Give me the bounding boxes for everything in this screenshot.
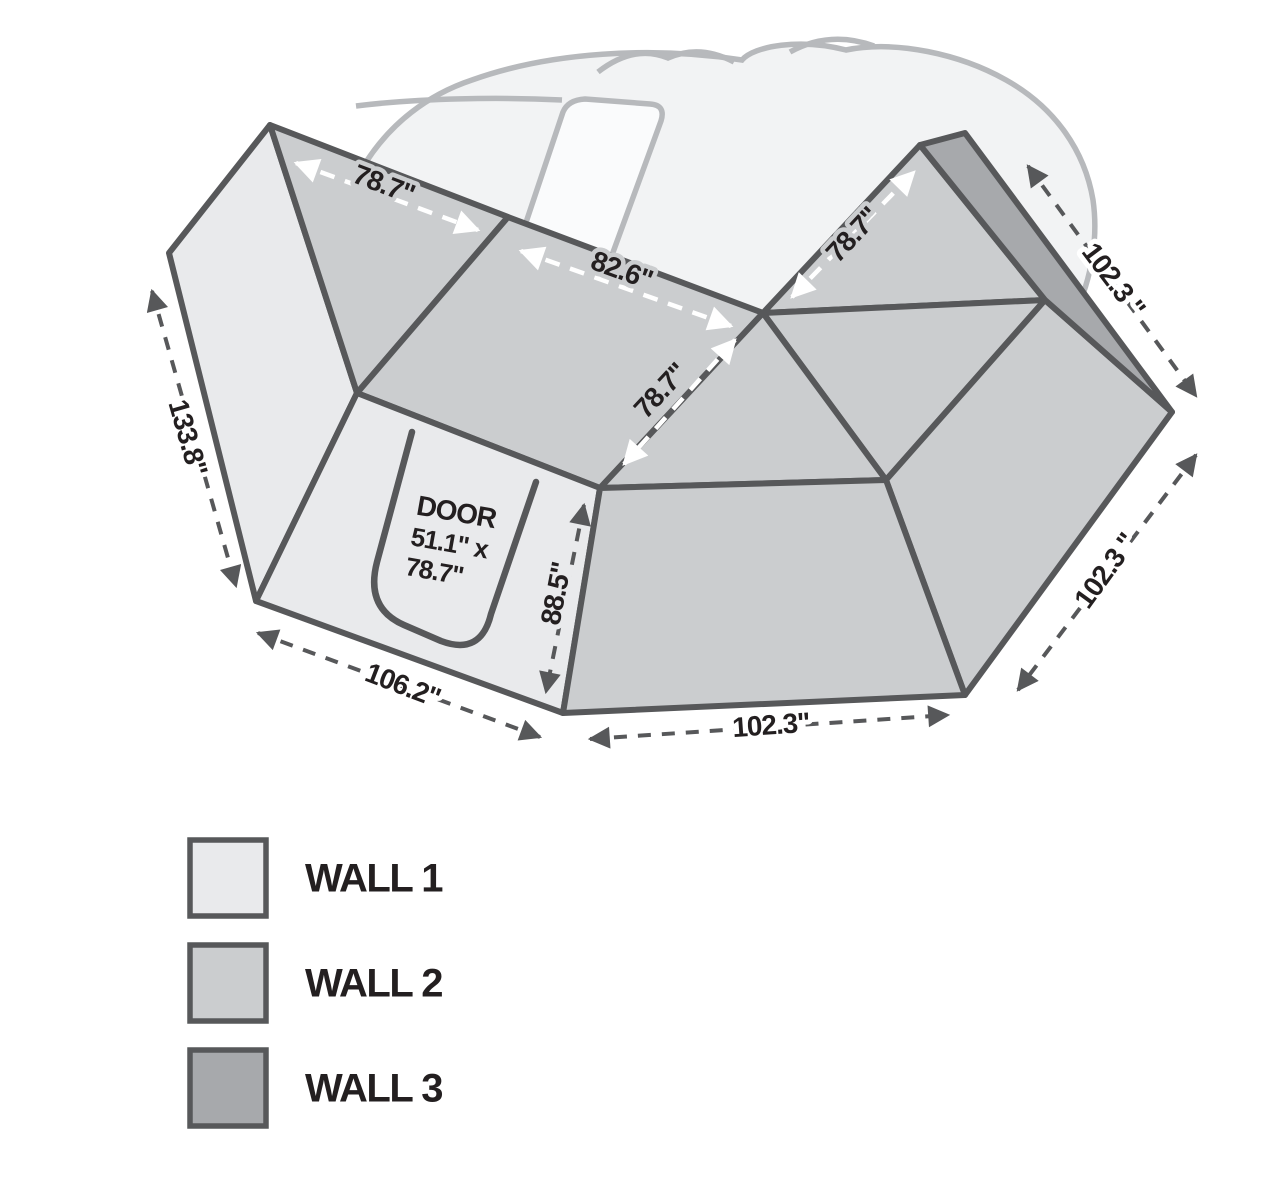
legend-swatch-wall1	[190, 840, 266, 916]
legend-swatch-wall2	[190, 945, 266, 1021]
legend-swatch-wall3	[190, 1050, 266, 1126]
legend-label-wall3: WALL 3	[305, 1067, 442, 1111]
awning-wall-dimension-page: DOOR 51.1" x 78.7" 78.7" 82.6" 78.7" 78.…	[0, 0, 1280, 1190]
legend: WALL 1 WALL 2 WALL 3	[190, 840, 443, 1126]
label-bottom-edge: 102.3"	[731, 707, 810, 743]
awning-wall-dimensions-diagram: DOOR 51.1" x 78.7" 78.7" 82.6" 78.7" 78.…	[0, 0, 1280, 1190]
legend-label-wall1: WALL 1	[305, 857, 443, 901]
legend-label-wall2: WALL 2	[305, 962, 442, 1006]
